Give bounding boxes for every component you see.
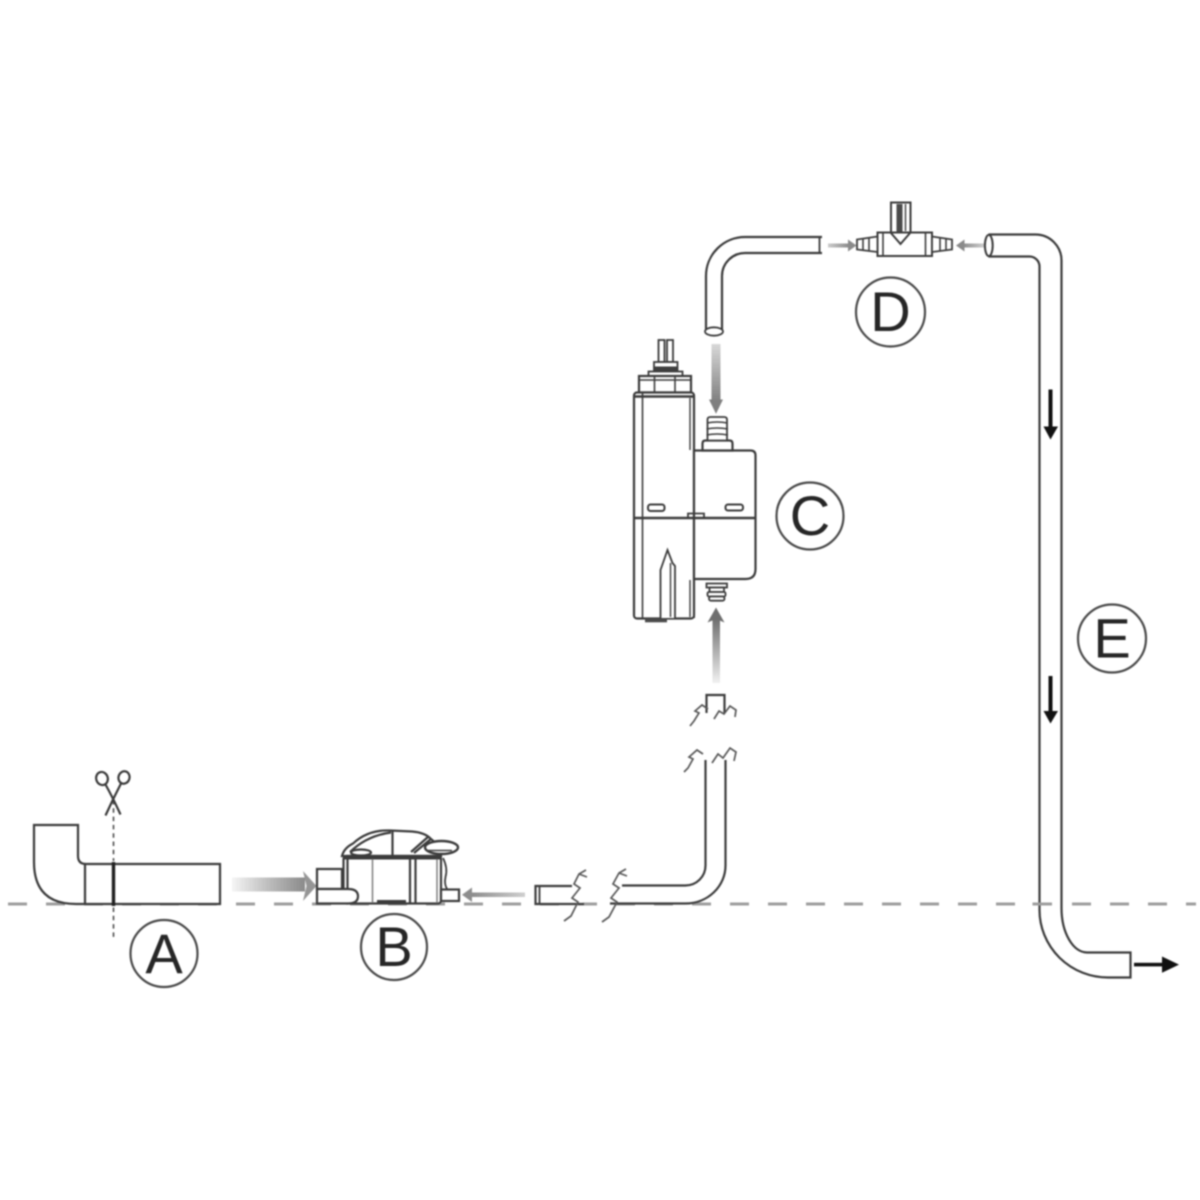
svg-text:B: B	[375, 915, 412, 978]
svg-text:E: E	[1093, 607, 1130, 670]
svg-text:C: C	[790, 484, 830, 547]
svg-text:D: D	[870, 280, 910, 343]
svg-text:A: A	[145, 922, 183, 985]
